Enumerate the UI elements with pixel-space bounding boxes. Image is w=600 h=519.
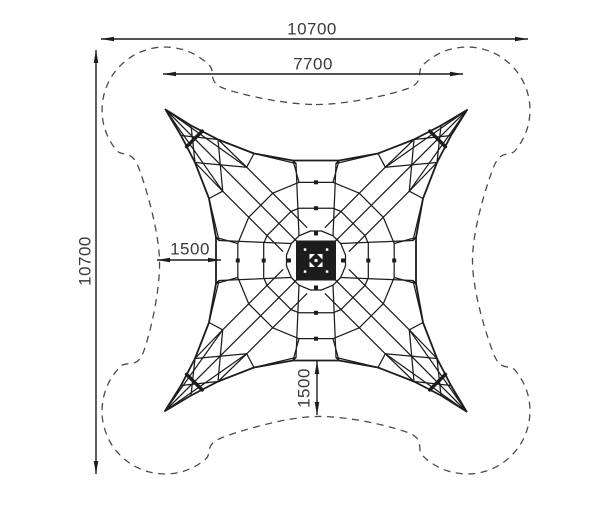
dim-label-net-width: 7700 [293, 56, 333, 73]
center-mast [296, 241, 336, 281]
dim-label-side-clearance: 1500 [170, 241, 210, 258]
dim-label-bottom-clearance: 1500 [296, 368, 313, 408]
dim-label-overall-height: 10700 [77, 236, 94, 286]
dim-label-overall-width: 10700 [287, 21, 337, 38]
technical-drawing-plan-view: 10700 7700 10700 1500 1500 [0, 0, 600, 519]
